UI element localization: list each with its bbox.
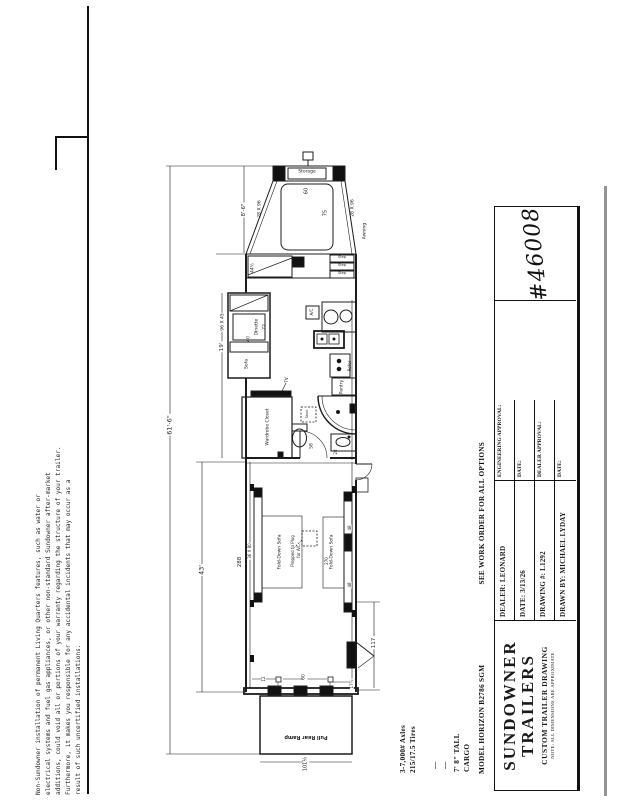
- dinette-size-dim: 96 X 45: [222, 312, 227, 331]
- rear-section-dim: 117: [371, 637, 377, 650]
- work-order-note: SEE WORK ORDER FOR ALL OPTIONS: [477, 442, 490, 584]
- step-width-dim: 44½: [252, 263, 257, 273]
- tire-note-line: 215/17.5 Tires: [408, 678, 418, 773]
- bed-side-right-dim: 28 X 96: [352, 199, 357, 216]
- sofa-label: Sofa: [246, 359, 251, 369]
- drawn-by-field: DRAWN BY: MICHAEL LYDAY: [555, 481, 576, 620]
- cargo-interior-dim: 288: [237, 556, 243, 569]
- prepped-ac-box: [302, 531, 317, 546]
- sheet-number-cell: #46008: [495, 207, 576, 300]
- rear-wall-and-ramp: [244, 677, 358, 762]
- bathroom-fixtures: [242, 383, 356, 458]
- title-block-approvals: ENGINEERING APPROVAL: DATE: DEALER APPRO…: [495, 300, 576, 480]
- overall-length-dim: 61'-6": [166, 414, 173, 436]
- dim-48-a: 48: [348, 524, 352, 531]
- fold-down-sofa-left-label: Fold-Down Sofa: [279, 534, 284, 569]
- dealer-date-label: DATE:: [555, 400, 576, 480]
- engineering-approval-label: ENGINEERING APPROVAL:: [495, 400, 515, 480]
- door-width-dim: 58: [311, 442, 316, 450]
- dim-28: 28: [334, 449, 338, 454]
- ramp-width-dim: 101½: [303, 756, 309, 772]
- title-block-info: DEALER: LEONARD DATE: 3/13/26 DRAWING #:…: [495, 480, 576, 620]
- step-label: Step: [338, 272, 346, 276]
- tv-label: TV: [285, 377, 289, 382]
- pull-rear-ramp-label: Pull Rear Ramp: [284, 733, 327, 739]
- pantry-label: Pantry: [341, 380, 346, 394]
- wardrobe-label: Wardrobe Closet: [267, 408, 272, 445]
- dash-line: —: [440, 749, 450, 769]
- dealer-approval-label: DEALER APPROVAL:: [535, 400, 555, 480]
- brand-name-line2: TRAILERS: [519, 621, 537, 790]
- axle-tire-note: 3-7,000# Axles 215/17.5 Tires: [398, 678, 420, 773]
- storage-label: Storage: [298, 171, 316, 176]
- drawing-type-label: CUSTOM TRAILER DRAWING: [540, 621, 549, 790]
- dinette-width-dim: 40: [248, 336, 253, 342]
- engineering-date-label: DATE:: [515, 400, 535, 480]
- height-note-line: 7' 8" TALL: [452, 654, 462, 772]
- dinette-label: Dinette: [256, 319, 261, 336]
- dim-270: 270: [325, 557, 329, 565]
- trailer-walls: [246, 254, 356, 692]
- bed-width-dim: 60: [304, 188, 310, 194]
- dealer-field: DEALER: LEONARD: [495, 481, 515, 620]
- drawing-number-field: DRAWING #: L1292: [535, 481, 555, 620]
- scanned-drawing-sheet: Non-Sundowner installation of permanent …: [0, 0, 619, 800]
- bed-length-dim: 75: [323, 210, 329, 216]
- kitchen-counter: [306, 302, 356, 395]
- handwritten-sheet-number: #46008: [518, 205, 553, 302]
- dimensions-note: NOTE: ALL DIMENSIONS ARE APPROXIMATE: [550, 621, 555, 790]
- sofa-size-dim: 36 X 80: [248, 542, 252, 559]
- awning-label: Awning: [364, 223, 369, 239]
- gooseneck-length-dim: 8'-6": [241, 202, 247, 217]
- title-block-brand: SUNDOWNER TRAILERS CUSTOM TRAILER DRAWIN…: [495, 620, 576, 790]
- rear-door-width-dim: 60: [303, 673, 308, 681]
- model-number: MODEL HORIZON B2786 SGM: [477, 665, 490, 774]
- cargo-height-note: 7' 8" TALL CARGO: [452, 654, 476, 772]
- step-label: Step: [338, 264, 346, 268]
- cargo-note-line: CARGO: [462, 654, 472, 772]
- wall-vent-marks: [250, 484, 356, 662]
- title-block: SUNDOWNER TRAILERS CUSTOM TRAILER DRAWIN…: [494, 206, 580, 791]
- note-dashes: — —: [430, 749, 450, 769]
- stool-label: Stool: [306, 410, 310, 419]
- ac-unit-label: A/C: [310, 309, 314, 316]
- step-label: Step: [338, 256, 346, 260]
- bed-side-left-dim: 28 X 96: [259, 200, 264, 217]
- fold-down-sofa-right-label: Fold-Down Sofa: [331, 534, 336, 569]
- axle-note-line: 3-7,000# Axles: [398, 678, 408, 773]
- dim-17-half: 17½: [350, 679, 354, 690]
- cargo-length-dim: 43': [198, 564, 205, 576]
- prepped-ac-label-1: Prepped to Plug: [291, 535, 295, 567]
- dim-48-b: 48: [348, 581, 352, 588]
- lq-length-dim: 19': [219, 342, 225, 353]
- dim-12: 12: [262, 675, 266, 682]
- brand-name-line1: SUNDOWNER: [501, 621, 519, 790]
- dash-line: —: [430, 749, 440, 769]
- dinette-length-dim: 72: [264, 324, 269, 330]
- rear-side-door: [347, 642, 374, 668]
- date-field: DATE: 3/13/26: [515, 481, 535, 620]
- prepped-ac-label-2: for A/C: [297, 544, 301, 558]
- refer-label: Refer: [348, 361, 352, 372]
- fold-down-sofa-right: [323, 492, 352, 612]
- model-options-line: MODEL HORIZON B2786 SGM SEE WORK ORDER F…: [477, 442, 490, 774]
